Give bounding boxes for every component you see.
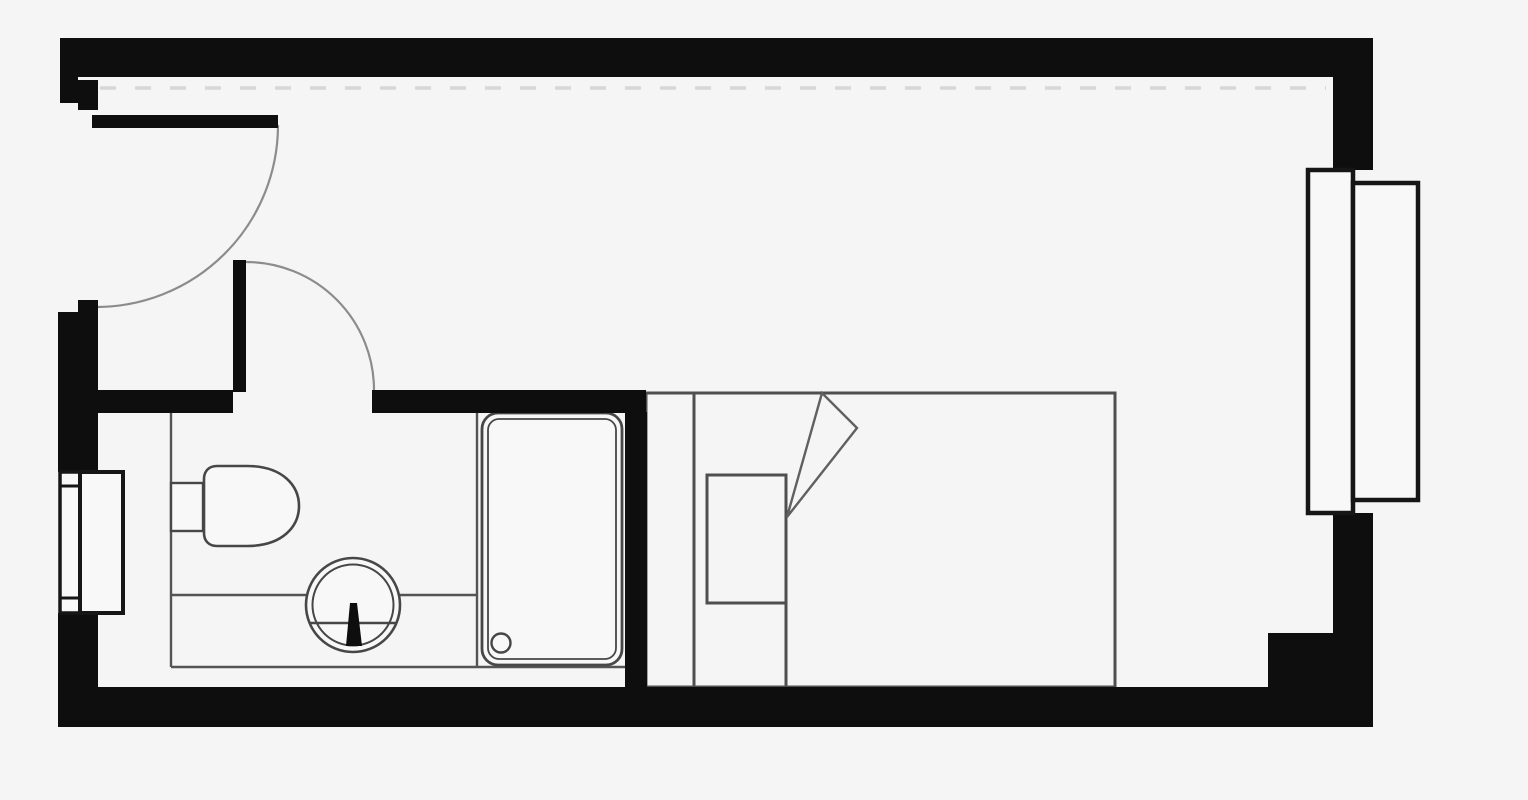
right-window-frame [1308, 170, 1353, 513]
wall-right-upper [1333, 77, 1373, 170]
shower-tray-outer [482, 413, 622, 665]
bathroom-fixtures [171, 413, 622, 665]
floor-plan-svg [0, 0, 1528, 800]
wall-left-lower [58, 613, 98, 727]
bathroom-door-leaf [233, 260, 246, 392]
toilet-cistern [171, 483, 203, 531]
left-window-sill [60, 472, 80, 613]
floor-plan-canvas [0, 0, 1528, 800]
entry-door-leaf [92, 115, 278, 128]
wall-left-entry-jamb [60, 77, 78, 103]
wall-bottom [98, 687, 1373, 727]
furniture [646, 393, 1115, 687]
bed-pillow [707, 475, 786, 603]
toilet-bowl [204, 466, 299, 546]
entry-jamb-step-upper [78, 80, 98, 110]
bathroom-wall-left-segment [98, 390, 233, 413]
left-window-frame [80, 472, 123, 613]
entry-door-swing-arc [96, 125, 278, 307]
entry-jamb-step-lower [78, 300, 98, 314]
bathroom-door-swing-arc [246, 262, 374, 390]
walls [58, 38, 1373, 727]
bathroom-wall-right-segment [372, 390, 646, 413]
bed-duvet-fold [787, 393, 857, 517]
bathroom-wall-vertical [625, 412, 647, 687]
bed-outline [646, 393, 1115, 687]
right-window-sill [1353, 183, 1418, 500]
wall-top [60, 38, 1373, 77]
wall-right-lower [1333, 513, 1373, 688]
wall-left-middle [58, 312, 98, 472]
